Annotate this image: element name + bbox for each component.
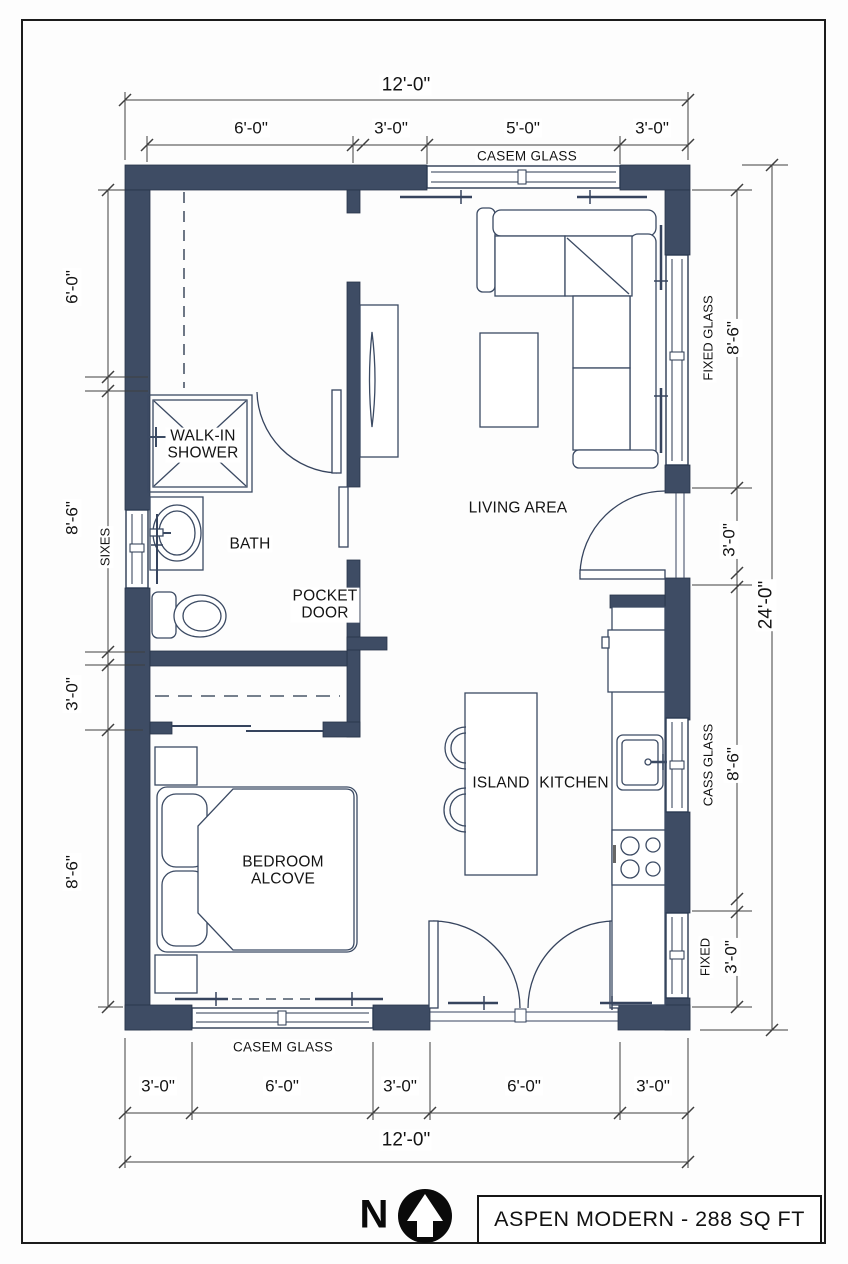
fixed-glass-window-right xyxy=(666,255,688,465)
walk-in-shower-line2: SHOWER xyxy=(168,445,239,462)
casement-window-top xyxy=(427,166,620,188)
dim-bottom-seg-4: 6'-0" xyxy=(505,1076,543,1095)
dim-top-seg-3: 5'-0" xyxy=(504,118,542,137)
plan-title: ASPEN MODERN - 288 SQ FT xyxy=(494,1207,805,1232)
room-label-walk-in-shower: WALK-IN SHOWER xyxy=(166,428,241,463)
double-french-doors xyxy=(429,921,619,1022)
window-label-bottom: CASEM GLASS xyxy=(231,1039,335,1054)
title-block: ASPEN MODERN - 288 SQ FT xyxy=(477,1195,822,1244)
entry-door xyxy=(580,491,684,579)
dim-left-seg-4: 8'-6" xyxy=(62,853,81,891)
dim-top-seg-2: 3'-0" xyxy=(372,118,410,137)
dim-left-seg-3: 3'-0" xyxy=(62,675,81,713)
dim-right-seg-1: 8'-6" xyxy=(723,319,742,357)
room-label-bedroom-alcove: BEDROOM ALCOVE xyxy=(240,854,326,889)
coffee-table xyxy=(480,333,538,427)
dim-right-seg-4: 3'-0" xyxy=(721,938,740,976)
room-label-pocket-door: POCKET DOOR xyxy=(291,588,360,623)
dim-bottom-seg-3: 3'-0" xyxy=(381,1076,419,1095)
north-label: N xyxy=(360,1193,389,1238)
floor-plan-sheet: 12'-0" 6'-0" 3'-0" 5'-0" 3'-0" CASEM GLA… xyxy=(0,0,848,1264)
kitchen-sink xyxy=(617,735,667,790)
dim-bottom-overall: 12'-0" xyxy=(380,1129,432,1150)
north-arrow-icon xyxy=(398,1189,452,1243)
fixed-window-right-small xyxy=(666,913,688,998)
fixed-glass-label: FIXED GLASS xyxy=(702,293,717,382)
island-stools xyxy=(444,727,466,832)
dim-left-seg-1: 6'-0" xyxy=(62,268,81,306)
dim-top-overall: 12'-0" xyxy=(380,74,432,95)
bath-door xyxy=(257,390,341,473)
pocket-door xyxy=(339,487,348,547)
walk-in-shower-line1: WALK-IN xyxy=(168,428,239,445)
dim-right-seg-3: 8'-6" xyxy=(723,745,742,783)
window-label-left: SIXES xyxy=(99,526,114,568)
nightstand-top xyxy=(155,747,197,785)
dim-right-overall: 24'-0" xyxy=(755,579,776,631)
room-label-bath: BATH xyxy=(228,535,273,552)
room-label-living-area: LIVING AREA xyxy=(467,499,570,516)
dim-bottom-seg-5: 3'-0" xyxy=(634,1076,672,1095)
fixed-label: FIXED xyxy=(699,936,714,978)
pocket-door-line2: DOOR xyxy=(293,605,358,622)
tv-console xyxy=(360,305,398,457)
dim-top-seg-4: 3'-0" xyxy=(633,118,671,137)
refrigerator xyxy=(602,630,665,692)
room-label-island: ISLAND xyxy=(470,774,531,791)
window-left-sixes xyxy=(126,510,148,588)
pocket-door-line1: POCKET xyxy=(293,588,358,605)
cass-glass-window-right xyxy=(666,718,688,812)
cooktop xyxy=(612,830,665,885)
dim-left-seg-2: 8'-6" xyxy=(62,499,81,537)
toilet xyxy=(152,592,226,638)
closet-sliding-doors xyxy=(172,726,323,731)
room-label-kitchen: KITCHEN xyxy=(537,774,610,791)
dim-top-seg-1: 6'-0" xyxy=(232,118,270,137)
furniture xyxy=(148,208,667,1005)
casement-window-bottom xyxy=(192,1008,373,1028)
floor-plan-drawing xyxy=(0,0,848,1264)
dim-bottom-seg-2: 6'-0" xyxy=(263,1076,301,1095)
dim-bottom-seg-1: 3'-0" xyxy=(139,1076,177,1095)
nightstand-bottom xyxy=(155,955,197,993)
cass-glass-label: CASS GLASS xyxy=(702,722,717,808)
bedroom-alcove-line1: BEDROOM xyxy=(242,854,324,871)
dim-right-seg-2: 3'-0" xyxy=(719,521,738,559)
bedroom-alcove-line2: ALCOVE xyxy=(242,871,324,888)
window-label-top: CASEM GLASS xyxy=(475,148,579,163)
